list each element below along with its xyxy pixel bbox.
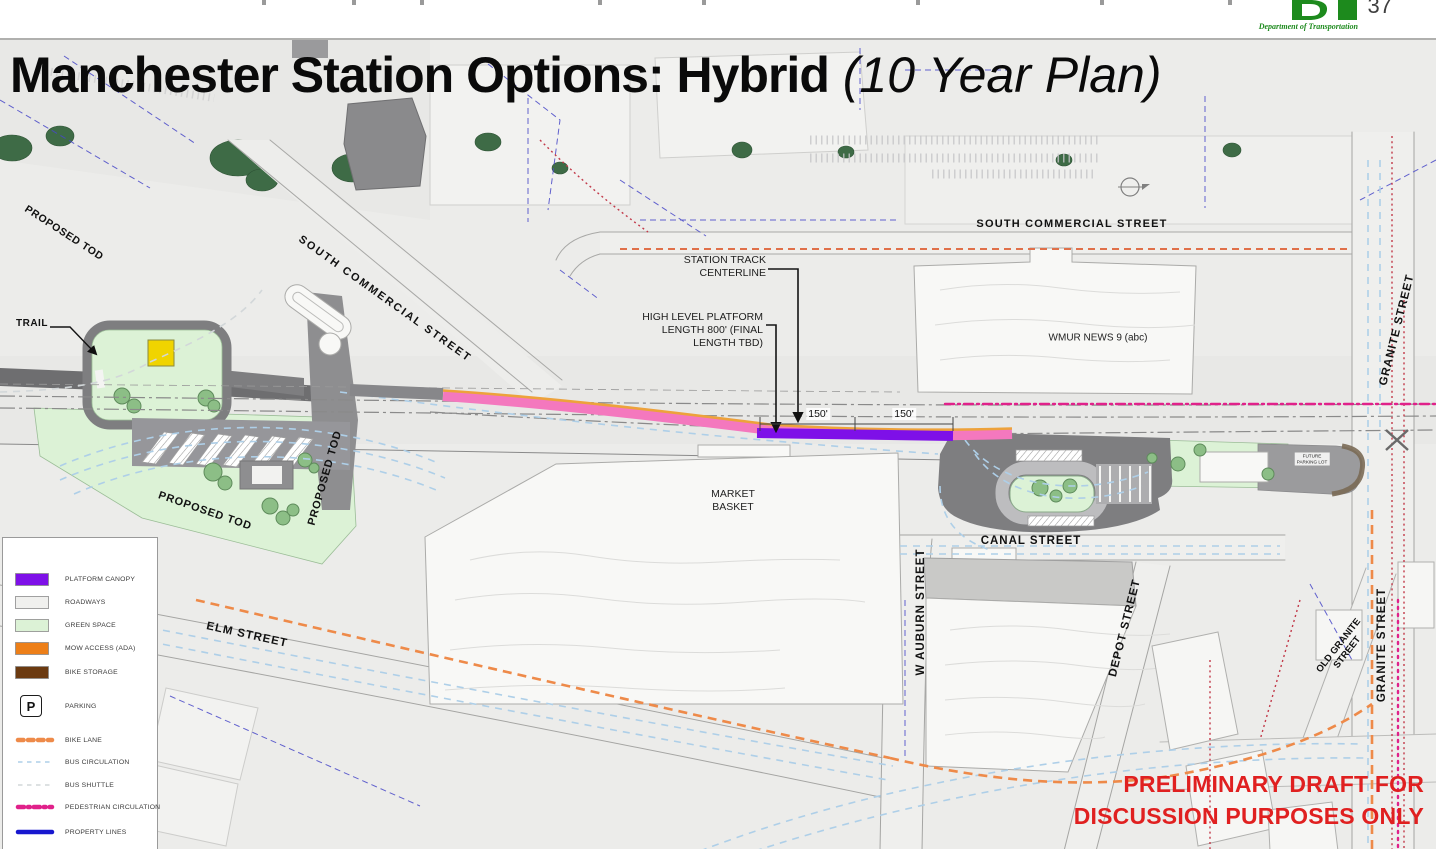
annotation-high-level-platform: HIGH LEVEL PLATFORM LENGTH 800' (FINAL L… <box>642 311 763 350</box>
legend-label: BUS SHUTTLE <box>65 782 114 789</box>
market-basket-line2: BASKET <box>711 501 755 514</box>
legend-label: BIKE LANE <box>65 737 102 744</box>
legend-label: MOW ACCESS (ADA) <box>65 645 135 652</box>
legend-swatch <box>15 619 49 632</box>
dot-tagline: Department of Transportation <box>1259 22 1358 31</box>
title-main: Manchester Station Options: Hybrid <box>10 47 829 103</box>
legend-item-parking: P PARKING <box>15 695 42 717</box>
legend-label: PLATFORM CANOPY <box>65 576 135 583</box>
legend-item-bike-storage: BIKE STORAGE <box>15 663 49 681</box>
legend-label: BIKE STORAGE <box>65 669 118 676</box>
street-label-canal: CANAL STREET <box>981 535 1082 547</box>
station-track-line1: STATION TRACK <box>684 254 766 267</box>
legend-item-green-space: GREEN SPACE <box>15 616 49 634</box>
legend-swatch <box>15 642 49 655</box>
page-number: 37 <box>1368 0 1392 19</box>
legend-item-bike-lane: BIKE LANE <box>15 731 55 749</box>
street-label-south-commercial-top: SOUTH COMMERCIAL STREET <box>976 218 1167 230</box>
legend-label: ROADWAYS <box>65 599 106 606</box>
platform-line3: LENGTH TBD) <box>642 337 763 350</box>
legend-item-platform-canopy: PLATFORM CANOPY <box>15 570 49 588</box>
street-label-w-auburn: W AUBURN STREET <box>915 548 927 675</box>
legend-swatch <box>15 573 49 586</box>
title-suffix: (10 Year Plan) <box>829 47 1162 103</box>
wmur-building <box>914 248 1196 394</box>
legend-item-bus-shuttle: BUS SHUTTLE <box>15 776 55 794</box>
legend-line-sample <box>15 735 55 745</box>
legend-line-sample <box>15 827 55 837</box>
annotation-station-track: STATION TRACK CENTERLINE <box>684 254 766 280</box>
dot-logo-icon: Department of Transportation 37 <box>1286 0 1396 36</box>
platform-line2: LENGTH 800' (FINAL <box>642 324 763 337</box>
legend-label: PROPERTY LINES <box>65 829 126 836</box>
top-bar: Department of Transportation 37 <box>0 0 1436 38</box>
site-plan-graphic <box>0 40 1436 849</box>
street-label-granite-lower: GRANITE STREET <box>1376 588 1388 702</box>
page-title: Manchester Station Options: Hybrid (10 Y… <box>10 46 1161 104</box>
legend-label: PARKING <box>65 703 97 710</box>
platform-canopy <box>757 433 953 436</box>
site-plan-map <box>0 38 1436 849</box>
legend-line-sample <box>15 757 55 767</box>
building-label-market-basket: MARKET BASKET <box>711 488 755 514</box>
legend-item-property-lines: PROPERTY LINES <box>15 823 55 841</box>
legend-swatch <box>15 596 49 609</box>
legend-label: BUS CIRCULATION <box>65 759 129 766</box>
market-basket-line1: MARKET <box>711 488 755 501</box>
legend-line-sample <box>15 780 55 790</box>
street-label-trail: TRAIL <box>16 318 48 329</box>
station-track-line2: CENTERLINE <box>684 267 766 280</box>
legend: STATION PLATFORM PLATFORM CANOPY ROADWAY… <box>2 537 158 849</box>
station-building <box>1200 452 1268 482</box>
building-label-future-parking: FUTURE PARKING LOT <box>1295 453 1330 466</box>
legend-item-roadways: ROADWAYS <box>15 593 49 611</box>
future-parking-line2: PARKING LOT <box>1297 459 1328 465</box>
legend-line-sample <box>15 802 55 812</box>
slide-page: Department of Transportation 37 <box>0 0 1436 849</box>
dimension-150-left: 150' <box>806 408 830 420</box>
legend-swatch <box>15 666 49 679</box>
legend-item-mow-access: MOW ACCESS (ADA) <box>15 639 49 657</box>
legend-label: PEDESTRIAN CIRCULATION <box>65 804 160 811</box>
legend-item-bus-circulation: BUS CIRCULATION <box>15 753 55 771</box>
disclaimer-line2: DISCUSSION PURPOSES ONLY <box>1074 800 1424 832</box>
disclaimer-line1: PRELIMINARY DRAFT FOR <box>1074 768 1424 800</box>
legend-item-pedestrian-circulation: PEDESTRIAN CIRCULATION <box>15 798 55 816</box>
platform-line1: HIGH LEVEL PLATFORM <box>642 311 763 324</box>
legend-label: GREEN SPACE <box>65 622 116 629</box>
disclaimer: PRELIMINARY DRAFT FOR DISCUSSION PURPOSE… <box>1074 768 1424 832</box>
parking-icon: P <box>20 695 42 717</box>
building-label-wmur: WMUR NEWS 9 (abc) <box>1049 333 1148 344</box>
dimension-150-right: 150' <box>892 408 916 420</box>
